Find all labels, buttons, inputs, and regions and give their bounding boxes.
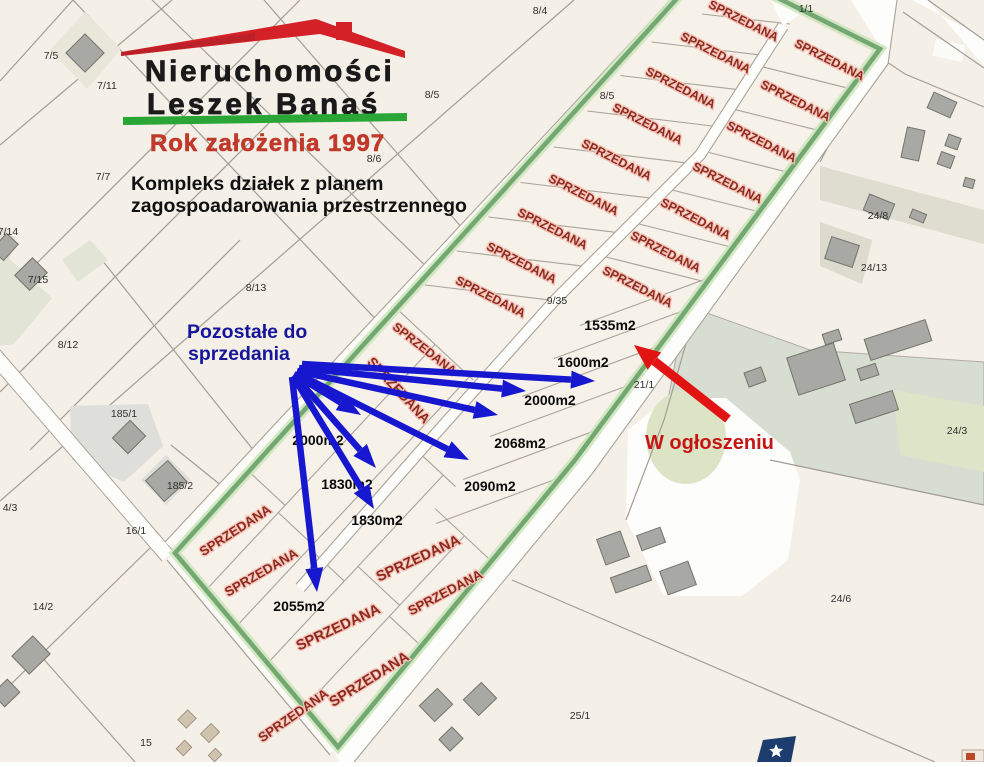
svg-text:2055m2: 2055m2	[273, 598, 325, 614]
svg-text:14/2: 14/2	[33, 601, 54, 613]
svg-text:1830m2: 1830m2	[351, 512, 403, 528]
svg-text:24/8: 24/8	[868, 210, 889, 222]
svg-text:16/1: 16/1	[126, 525, 147, 537]
svg-text:1535m2: 1535m2	[584, 317, 636, 333]
svg-text:185/2: 185/2	[167, 480, 193, 492]
svg-text:zagospoadarowania przestrzenne: zagospoadarowania przestrzennego	[131, 195, 467, 217]
svg-text:7/11: 7/11	[97, 80, 117, 92]
svg-text:W ogłoszeniu: W ogłoszeniu	[645, 432, 774, 454]
svg-text:9/35: 9/35	[547, 295, 568, 307]
svg-text:185/1: 185/1	[111, 408, 137, 420]
svg-text:1600m2: 1600m2	[557, 354, 609, 370]
svg-text:Nieruchomości: Nieruchomości	[145, 55, 395, 88]
svg-text:7/14: 7/14	[0, 226, 18, 238]
svg-text:Rok założenia 1997: Rok założenia 1997	[150, 130, 385, 157]
svg-text:24/13: 24/13	[861, 262, 887, 274]
svg-text:8/5: 8/5	[600, 90, 615, 102]
svg-text:2090m2: 2090m2	[464, 478, 516, 494]
svg-text:7/7: 7/7	[96, 171, 111, 183]
svg-text:2000m2: 2000m2	[524, 392, 576, 408]
svg-text:7/15: 7/15	[28, 274, 49, 286]
svg-text:21/1: 21/1	[634, 379, 655, 391]
svg-text:25/1: 25/1	[570, 710, 591, 722]
svg-text:2068m2: 2068m2	[494, 435, 546, 451]
svg-text:15: 15	[140, 737, 152, 749]
svg-text:8/13: 8/13	[246, 282, 267, 294]
svg-text:24/6: 24/6	[831, 593, 852, 605]
svg-text:8/4: 8/4	[533, 5, 548, 17]
svg-text:4/3: 4/3	[3, 502, 18, 514]
svg-text:24/3: 24/3	[947, 425, 968, 437]
svg-text:sprzedania: sprzedania	[188, 343, 290, 365]
svg-text:Kompleks działek z planem: Kompleks działek z planem	[131, 173, 384, 195]
svg-text:8/12: 8/12	[58, 339, 79, 351]
svg-text:7/5: 7/5	[44, 50, 59, 62]
svg-text:8/5: 8/5	[425, 89, 440, 101]
svg-text:1/1: 1/1	[799, 3, 814, 15]
svg-text:Pozostałe do: Pozostałe do	[187, 321, 307, 343]
